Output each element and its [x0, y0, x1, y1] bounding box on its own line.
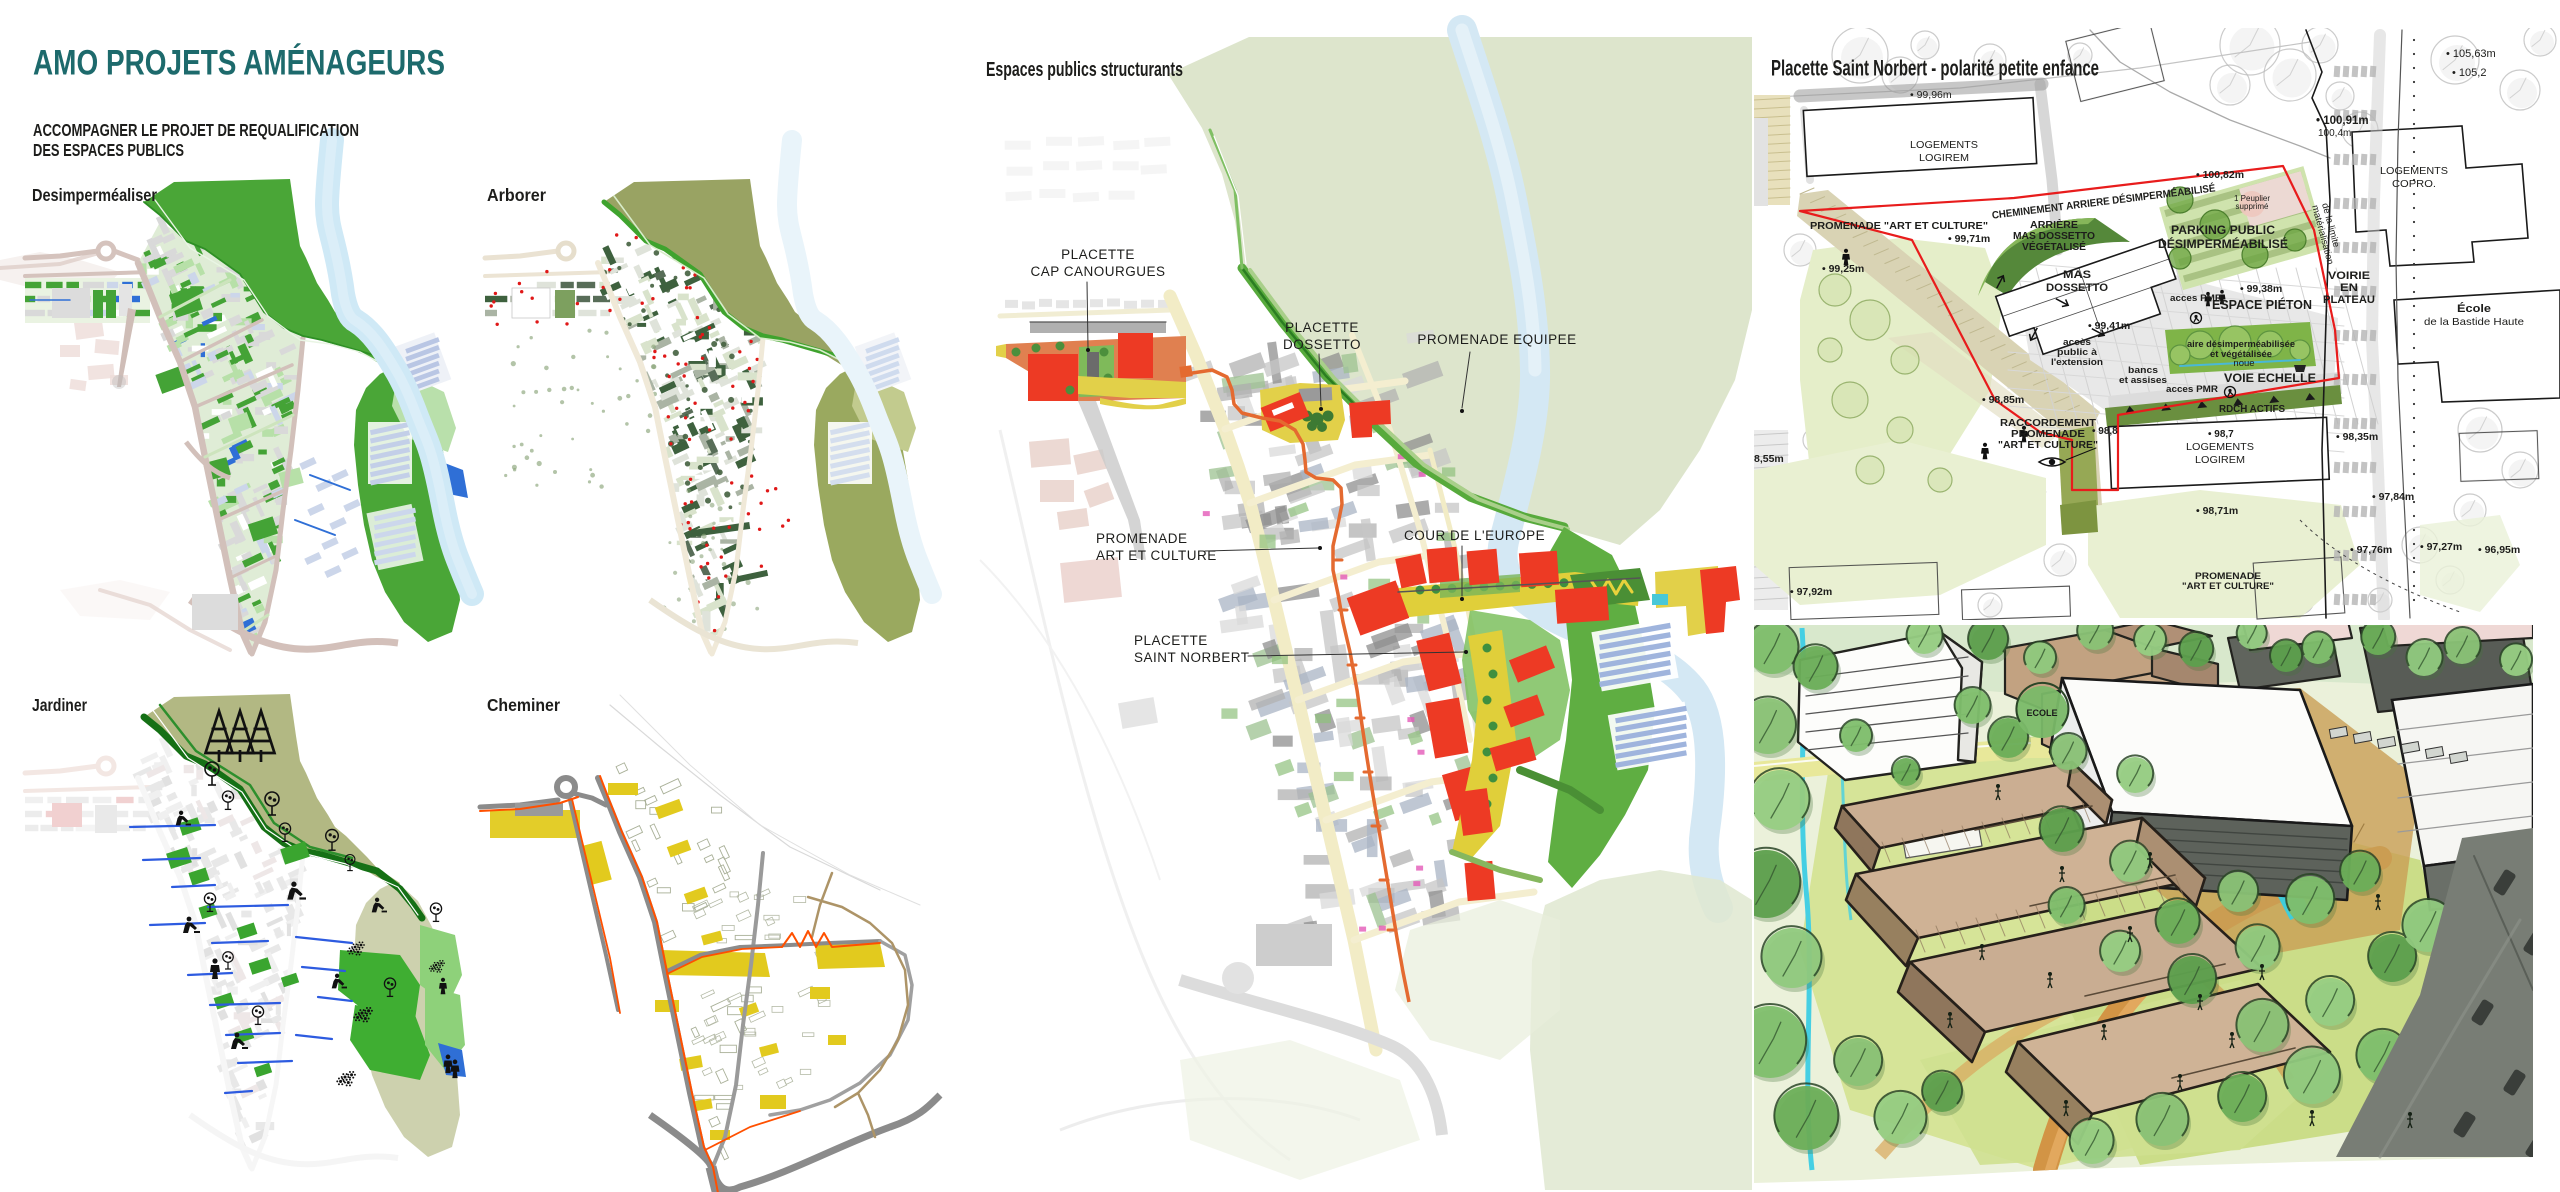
- svg-text:ACCOMPAGNER LE PROJET DE REQUA: ACCOMPAGNER LE PROJET DE REQUALIFICATION: [33, 120, 359, 140]
- svg-text:l'extension: l'extension: [2051, 357, 2103, 368]
- svg-text:Arborer: Arborer: [487, 185, 546, 205]
- svg-text:AMO PROJETS AMÉNAGEURS: AMO PROJETS AMÉNAGEURS: [33, 43, 445, 83]
- svg-text:• 99,71m: • 99,71m: [1948, 233, 1990, 245]
- svg-text:• 97,27m: • 97,27m: [2420, 541, 2462, 553]
- svg-text:MAS: MAS: [2063, 269, 2091, 281]
- svg-text:• 96,95m: • 96,95m: [2478, 544, 2520, 556]
- svg-text:• 100,82m: • 100,82m: [2196, 169, 2244, 181]
- svg-text:PROMENADE "ART ET CULTURE": PROMENADE "ART ET CULTURE": [1810, 221, 1988, 232]
- svg-text:CAP CANOURGUES: CAP CANOURGUES: [1030, 264, 1165, 279]
- svg-text:et assises: et assises: [2119, 375, 2167, 386]
- svg-text:COUR DE L'EUROPE: COUR DE L'EUROPE: [1404, 528, 1545, 543]
- svg-text:PARKING PUBLIC: PARKING PUBLIC: [2171, 223, 2275, 237]
- svg-text:PLACETTE: PLACETTE: [1061, 247, 1135, 262]
- svg-text:École: École: [2457, 302, 2491, 315]
- svg-text:• 97,92m: • 97,92m: [1790, 586, 1832, 598]
- svg-text:100,4m: 100,4m: [2318, 128, 2351, 139]
- svg-text:MAS DOSSETTO: MAS DOSSETTO: [2013, 231, 2095, 242]
- svg-text:ESPACE PIÉTON: ESPACE PIÉTON: [2212, 297, 2312, 312]
- svg-text:• 98,85m: • 98,85m: [1982, 394, 2024, 406]
- svg-text:ECOLE: ECOLE: [2026, 708, 2057, 718]
- svg-text:Espaces publics structurants: Espaces publics structurants: [986, 58, 1183, 81]
- svg-text:PROMENADE EQUIPEE: PROMENADE EQUIPEE: [1417, 332, 1576, 347]
- svg-text:RDCH ACTIFS: RDCH ACTIFS: [2219, 404, 2285, 415]
- svg-text:noue: noue: [2233, 358, 2254, 369]
- svg-text:VOIE ECHELLE: VOIE ECHELLE: [2224, 371, 2316, 385]
- svg-text:EN: EN: [2340, 282, 2358, 294]
- svg-text:SAINT NORBERT: SAINT NORBERT: [1134, 650, 1250, 665]
- svg-text:PLATEAU: PLATEAU: [2323, 294, 2375, 306]
- svg-text:DES ESPACES PUBLICS: DES ESPACES PUBLICS: [33, 140, 184, 160]
- svg-text:LOGEMENTS: LOGEMENTS: [1910, 139, 1978, 151]
- svg-text:ART ET CULTURE: ART ET CULTURE: [1096, 548, 1217, 563]
- svg-text:PLACETTE: PLACETTE: [1134, 633, 1208, 648]
- svg-text:ARRIÈRE: ARRIÈRE: [2030, 218, 2078, 231]
- svg-text:• 99,41m: • 99,41m: [2088, 320, 2130, 332]
- svg-text:LOGEMENTS: LOGEMENTS: [2186, 441, 2254, 453]
- svg-text:• 99,25m: • 99,25m: [1822, 263, 1864, 275]
- svg-text:• 98,7: • 98,7: [2208, 429, 2234, 440]
- svg-text:• 97,84m: • 97,84m: [2372, 491, 2414, 503]
- svg-text:PROMENADE: PROMENADE: [1096, 531, 1188, 546]
- svg-text:acces PMR: acces PMR: [2170, 293, 2222, 304]
- svg-text:8,55m: 8,55m: [1754, 453, 1784, 465]
- svg-text:DOSSETTO: DOSSETTO: [1283, 337, 1361, 352]
- svg-text:LOGEMENTS: LOGEMENTS: [2380, 165, 2448, 177]
- svg-text:PLACETTE: PLACETTE: [1285, 320, 1359, 335]
- svg-text:Placette Saint Norbert - polar: Placette Saint Norbert - polarité petite…: [1771, 56, 2099, 81]
- svg-text:DÉSIMPERMÉABILISÉ: DÉSIMPERMÉABILISÉ: [2158, 236, 2288, 251]
- svg-text:Jardiner: Jardiner: [32, 695, 87, 715]
- svg-text:• 97,76m: • 97,76m: [2350, 544, 2392, 556]
- svg-text:• 99,96m: • 99,96m: [1910, 89, 1952, 101]
- svg-text:• 98,35m: • 98,35m: [2336, 431, 2378, 443]
- svg-text:COPRO.: COPRO.: [2392, 178, 2436, 190]
- svg-text:acces PMR: acces PMR: [2166, 384, 2218, 395]
- svg-text:• 105,63m: • 105,63m: [2446, 48, 2496, 60]
- svg-text:• 98,71m: • 98,71m: [2196, 505, 2238, 517]
- svg-text:VÉGÉTALISÉ: VÉGÉTALISÉ: [2022, 240, 2086, 253]
- svg-text:VOIRIE: VOIRIE: [2328, 270, 2370, 282]
- svg-text:• 100,91m: • 100,91m: [2316, 115, 2369, 127]
- svg-text:supprimé: supprimé: [2236, 202, 2269, 211]
- svg-text:• 99,38m: • 99,38m: [2240, 283, 2282, 295]
- svg-text:de la Bastide Haute: de la Bastide Haute: [2424, 316, 2524, 328]
- svg-text:Desimperméaliser: Desimperméaliser: [32, 185, 157, 205]
- svg-text:LOGIREM: LOGIREM: [2195, 454, 2245, 466]
- svg-text:• 105,2: • 105,2: [2452, 67, 2486, 79]
- svg-text:Cheminer: Cheminer: [487, 695, 560, 715]
- svg-text:LOGIREM: LOGIREM: [1919, 152, 1969, 164]
- svg-text:DOSSETTO: DOSSETTO: [2046, 282, 2108, 294]
- svg-text:"ART ET CULTURE": "ART ET CULTURE": [1998, 439, 2098, 451]
- svg-text:"ART ET CULTURE": "ART ET CULTURE": [2182, 581, 2274, 592]
